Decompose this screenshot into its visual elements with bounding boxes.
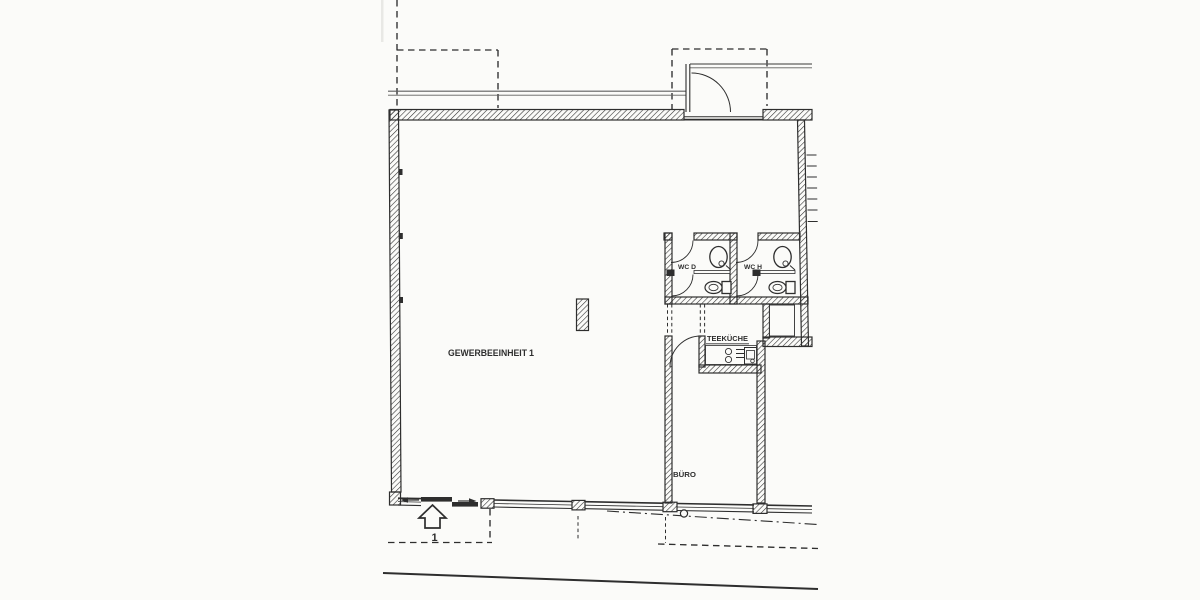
site-lines [383, 509, 818, 589]
storefront-band [398, 497, 812, 513]
wall-anchor [399, 233, 403, 239]
wall-anchor [399, 169, 403, 175]
shaft-opening [770, 305, 795, 336]
wc-bottom-wall [665, 297, 808, 304]
entrance-marker: 1 [419, 505, 446, 544]
wc-h-partition [758, 271, 795, 274]
wc-d-label: WC D [678, 264, 696, 271]
kitchen-label: TEEKÜCHE [707, 334, 748, 343]
washbasin-icon [710, 247, 731, 271]
unit-name-label: GEWERBEEINHEIT [448, 348, 527, 358]
window-mullion [753, 504, 767, 514]
window-mullion [481, 499, 494, 509]
office-room: BÜRO [665, 336, 765, 503]
washbasin-icon [774, 247, 795, 271]
sliding-door-leaf [421, 497, 452, 502]
column [577, 299, 589, 331]
toilet-icon [705, 282, 731, 294]
door-stop-block [667, 270, 675, 277]
wc-top-wall-right [758, 233, 800, 240]
shaft-bottom-wall [763, 337, 812, 347]
window-mullion [663, 502, 677, 512]
unit-label: GEWERBEEINHEIT 1 [448, 348, 534, 358]
wc-h-label: WC H [744, 264, 762, 271]
door-swing-arc [692, 73, 731, 112]
entrance-arrow-icon [419, 505, 446, 528]
sink-icon [745, 348, 758, 365]
wc-d-door-arc [672, 275, 694, 297]
sliding-door-leaf [452, 502, 478, 507]
wc-block: WC D WC H [664, 233, 808, 304]
kitchen-bottom-wall [699, 365, 761, 373]
dashed-outline-bottom-right [658, 544, 818, 549]
office-label: BÜRO [673, 470, 696, 479]
passage-opening-dashed [668, 304, 705, 335]
top-entrance-door [686, 64, 731, 112]
tea-kitchen: TEEKÜCHE [699, 334, 761, 373]
scan-artifact [381, 0, 384, 42]
kitchenette-icon [706, 346, 758, 365]
wall-anchor [399, 297, 403, 303]
wc-h-vestibule-door-arc [736, 241, 758, 263]
shaft-left-wall [763, 304, 770, 338]
toilet-icon [769, 282, 795, 294]
street-edge-line [383, 573, 818, 589]
floor-plan-svg: WC D WC H TEEKÜCHE [0, 0, 1200, 600]
overhang-outline-dashed [397, 0, 767, 109]
exterior-walls [389, 110, 812, 506]
top-wall-right-segment [763, 110, 812, 121]
scanned-floor-plan-page: WC D WC H TEEKÜCHE [0, 0, 1200, 600]
window-mullion [572, 500, 585, 510]
stair-ticks [807, 155, 818, 222]
wc-left-wall [665, 233, 672, 304]
wc-h-door-arc [737, 275, 759, 297]
office-right-wall [757, 341, 765, 503]
wc-d-partition [694, 271, 730, 274]
railing-lines [388, 64, 812, 95]
wc-d-vestibule-door-arc [671, 241, 693, 263]
top-wall-left-segment [390, 110, 684, 121]
unit-number-label: 1 [529, 348, 534, 358]
kitchen-left-wall [699, 336, 705, 367]
office-door-arc [670, 336, 701, 367]
boundary-point-marker [680, 510, 687, 517]
